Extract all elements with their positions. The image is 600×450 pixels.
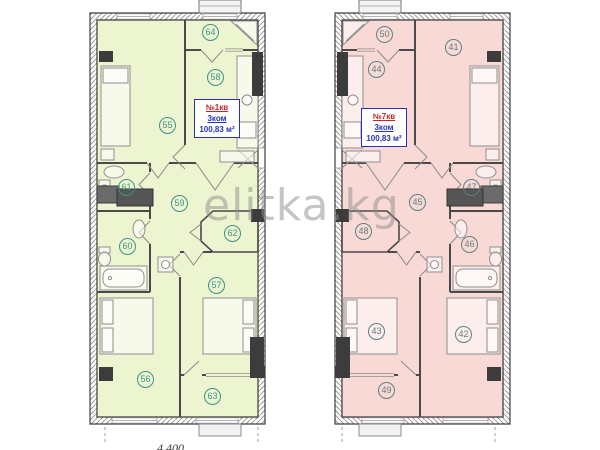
apt7-room-bedroom-bottom: 42 [455, 326, 472, 343]
apartment-7-area: 100,83 м² [363, 134, 405, 143]
apt1-room-hallway: 59 [171, 195, 188, 212]
apt1-room-loggia-top: 64 [202, 24, 219, 41]
apartment-7-number: №7кв [363, 112, 405, 121]
apt1-room-bedroom-bottom: 56 [137, 371, 154, 388]
apartment-1-rooms-count: 3ком [196, 114, 238, 123]
apt7-room-bedroom-main: 41 [445, 39, 462, 56]
apartment-7-rooms-count: 3ком [363, 123, 405, 132]
apt1-room-bedroom-middle: 57 [208, 277, 225, 294]
apt7-room-bathroom-upper: 47 [463, 179, 480, 196]
floorplan-image: 55 56 57 58 59 60 61 62 63 64 41 42 43 4… [0, 0, 600, 450]
apt7-room-bedroom-middle: 43 [368, 323, 385, 340]
apt7-room-kitchen: 44 [368, 61, 385, 78]
apt1-room-bathroom-upper: 61 [118, 179, 135, 196]
apartment-1-number: №1кв [196, 103, 238, 112]
site-watermark: elitka.kg [203, 180, 400, 231]
apt7-room-hallway: 45 [409, 194, 426, 211]
apt1-room-balcony-bottom: 63 [204, 388, 221, 405]
apartment-1-info-box: №1кв 3ком 100,83 м² [194, 99, 240, 138]
apt1-room-kitchen: 58 [207, 69, 224, 86]
dimension-label: 4 400 [157, 441, 184, 450]
apt7-room-loggia-top: 50 [376, 26, 393, 43]
apt7-room-balcony-bottom: 49 [378, 382, 395, 399]
apt1-room-bathroom-lower: 60 [119, 238, 136, 255]
apartment-7-info-box: №7кв 3ком 100,83 м² [361, 108, 407, 147]
apt1-room-bedroom-main: 55 [159, 117, 176, 134]
apartment-1-area: 100,83 м² [196, 125, 238, 134]
apt7-room-bathroom-lower: 46 [461, 236, 478, 253]
